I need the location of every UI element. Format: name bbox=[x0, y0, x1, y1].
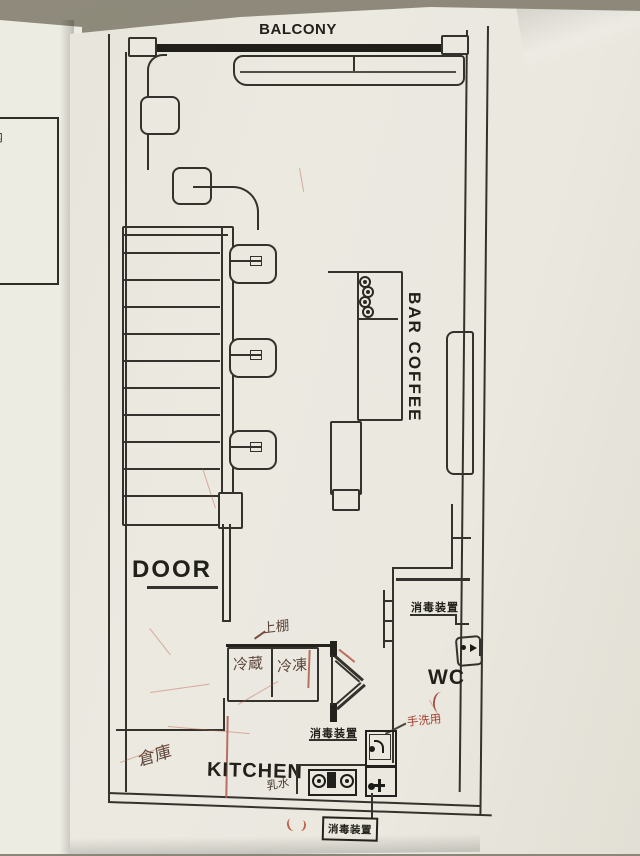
storage-right-wall bbox=[223, 698, 225, 731]
floor-plan: BALCONY BAR COFFEE bbox=[0, 0, 640, 854]
top-bench-front-edge bbox=[240, 71, 456, 73]
red-scribble-line bbox=[299, 168, 304, 192]
kitchen-counter-edge bbox=[296, 764, 366, 766]
table bbox=[140, 96, 180, 135]
sanitizer-label-bottom: 消毒装置 bbox=[328, 821, 372, 837]
staircase bbox=[122, 226, 234, 526]
corridor-wall bbox=[222, 524, 224, 622]
freezer-note: 冷凍 bbox=[277, 653, 307, 677]
red-scribble-line bbox=[149, 628, 171, 655]
bar-coffee-label: BAR COFFEE bbox=[404, 292, 424, 452]
wc-upper-wall bbox=[393, 567, 453, 569]
balcony-label: BALCONY bbox=[250, 21, 346, 38]
wall-tick bbox=[383, 620, 392, 622]
stair-tread bbox=[124, 279, 220, 281]
sanitizer-label-wc: 消毒装置 bbox=[411, 599, 459, 615]
stove-burner-icon bbox=[312, 774, 326, 788]
bar-counter-divider bbox=[358, 318, 398, 320]
red-retrace-mark bbox=[347, 655, 356, 663]
kitchen-sink bbox=[365, 766, 397, 797]
door-wall-line bbox=[147, 586, 218, 589]
sanitizer-leader-line bbox=[371, 793, 373, 818]
balcony-window-right-cap bbox=[441, 35, 469, 55]
sanitizer-leader-line bbox=[410, 614, 457, 616]
left-bench-corner bbox=[147, 54, 167, 96]
wall-table-leg bbox=[250, 256, 262, 266]
right-wall-bench bbox=[446, 331, 474, 475]
corridor-wall bbox=[229, 524, 231, 622]
wc-label: WC bbox=[428, 666, 465, 690]
stair-tread bbox=[124, 387, 220, 389]
stair-right-double-line bbox=[221, 228, 223, 520]
wall-table-leg bbox=[250, 442, 262, 452]
top-bench-divider bbox=[353, 57, 355, 71]
stair-tread bbox=[124, 252, 220, 254]
sanitizer-nozzle-dot bbox=[461, 645, 466, 650]
wall-tick bbox=[383, 600, 392, 602]
stair-tread bbox=[124, 468, 220, 470]
red-line-mark bbox=[225, 716, 228, 798]
door-jamb bbox=[330, 703, 337, 722]
wall-table-leg bbox=[250, 350, 262, 360]
stair-tread bbox=[124, 495, 220, 497]
door-label: DOOR bbox=[132, 556, 212, 584]
wall-left-outer bbox=[108, 34, 110, 802]
bar-partition-end bbox=[332, 489, 360, 511]
balcony-window-left-cap bbox=[128, 37, 157, 57]
stair-top-double-line bbox=[124, 234, 228, 236]
red-scribble-mark bbox=[296, 819, 307, 831]
stove-burner-icon bbox=[340, 774, 354, 788]
wall-step-vertical bbox=[451, 504, 453, 568]
milk-water-note: 乳水 bbox=[266, 774, 290, 794]
coffee-tap-icon bbox=[362, 306, 374, 318]
door-swing-line bbox=[336, 684, 366, 710]
stair-tread bbox=[124, 360, 220, 362]
sanitizer-underline bbox=[309, 739, 357, 741]
sanitizer-mount bbox=[479, 639, 482, 656]
upper-shelf-note: 上棚 bbox=[262, 614, 289, 637]
door-swing-line bbox=[335, 660, 360, 682]
door-swing-line bbox=[336, 682, 361, 704]
bar-partition bbox=[330, 421, 362, 495]
bench-corner bbox=[193, 186, 259, 230]
stove-center-block bbox=[327, 772, 336, 788]
sanitizer-arrow-icon bbox=[470, 644, 477, 652]
red-scribble-line bbox=[150, 684, 210, 693]
stair-tread bbox=[124, 441, 220, 443]
stair-tread bbox=[124, 333, 220, 335]
wall-step-horizontal bbox=[451, 537, 471, 539]
refrigerator-note: 冷蔵 bbox=[233, 652, 263, 675]
wall-right-outer bbox=[479, 26, 489, 814]
sanitizer-leader-line bbox=[455, 623, 469, 625]
kitchen-counter-edge bbox=[296, 764, 298, 794]
wall-tick bbox=[222, 620, 231, 622]
wc-top-wall bbox=[396, 578, 470, 581]
wall-tick bbox=[383, 640, 392, 642]
fridge-divider bbox=[271, 648, 273, 697]
stair-tread bbox=[124, 414, 220, 416]
balcony-window-band bbox=[153, 44, 445, 52]
stair-tread bbox=[124, 306, 220, 308]
door-wall-line bbox=[331, 655, 333, 705]
faucet-cross-icon bbox=[374, 784, 385, 787]
